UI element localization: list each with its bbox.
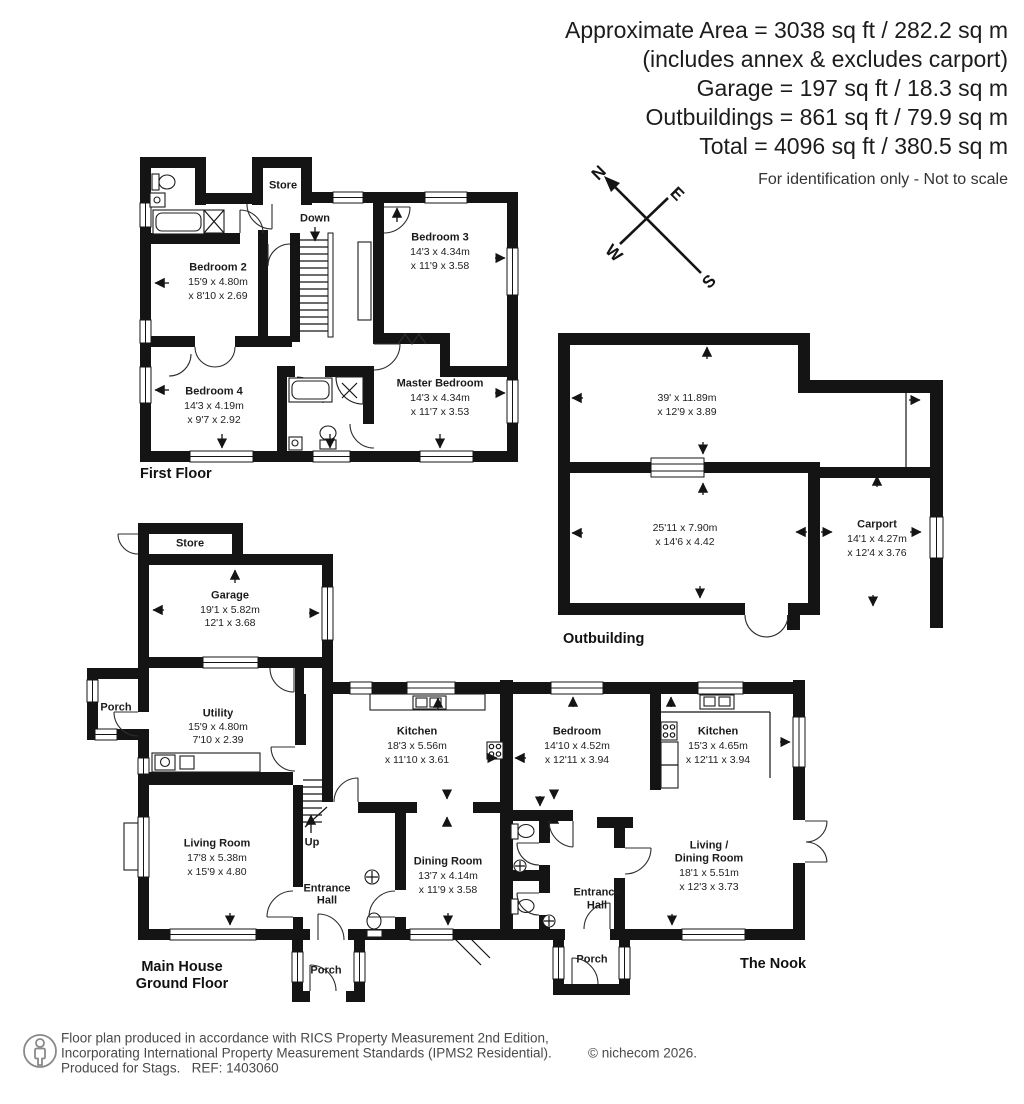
label-bedroom4: Bedroom 4 [185, 387, 242, 398]
title-first-floor: First Floor [140, 467, 212, 482]
dim-master-1: 14'3 x 4.34m [410, 393, 470, 404]
label-utility: Utility [203, 709, 234, 720]
label-porch-front: Porch [310, 966, 341, 977]
label-up: Up [305, 838, 320, 849]
ground-floor-plan [87, 523, 515, 1002]
garage-area: Garage = 197 sq ft / 18.3 sq m [565, 74, 1008, 103]
label-entrance-mh-2: Hall [317, 896, 337, 907]
dim-carport-1: 14'1 x 4.27m [847, 534, 907, 545]
label-living-room: Living Room [184, 839, 251, 850]
dim-carport-2: x 12'4 x 3.76 [847, 548, 906, 559]
label-down: Down [300, 214, 330, 225]
dim-living-2: x 15'9 x 4.80 [187, 867, 246, 878]
dim-garage-2: 12'1 x 3.68 [204, 618, 255, 629]
dim-dining-1: 13'7 x 4.14m [418, 871, 478, 882]
footer-line-3: Produced for Stags. REF: 1403060 [61, 1061, 279, 1076]
label-entrance-mh-1: Entrance [303, 884, 350, 895]
footer-line-1: Floor plan produced in accordance with R… [61, 1031, 549, 1046]
outbuildings-area: Outbuildings = 861 sq ft / 79.9 sq m [565, 103, 1008, 132]
toilet-icon [320, 440, 336, 449]
label-nook-bedroom: Bedroom [553, 727, 601, 738]
label-garage: Garage [211, 591, 249, 602]
dim-nook-kitchen-1: 15'3 x 4.65m [688, 741, 748, 752]
hob-icon [661, 722, 677, 740]
label-nook-living-2: Dining Room [675, 854, 743, 865]
approximate-area: Approximate Area = 3038 sq ft / 282.2 sq… [565, 16, 1008, 45]
dim-dining-2: x 11'9 x 3.58 [419, 885, 477, 896]
dim-utility-1: 15'9 x 4.80m [188, 722, 248, 733]
dim-kitchen-mh-2: x 11'10 x 3.61 [385, 755, 449, 766]
total-area: Total = 4096 sq ft / 380.5 sq m [565, 132, 1008, 161]
dim-outbuilding-room1-1: 39' x 11.89m [657, 393, 716, 404]
label-nook-porch: Porch [576, 955, 607, 966]
dim-living-1: 17'8 x 5.38m [187, 853, 247, 864]
label-bedroom3: Bedroom 3 [411, 233, 468, 244]
stairs-down [300, 227, 333, 337]
dim-outbuilding-room1-2: x 12'9 x 3.89 [657, 407, 716, 418]
dim-kitchen-mh-1: 18'3 x 5.56m [387, 741, 447, 752]
toilet-icon [511, 899, 518, 914]
toilet-icon [511, 824, 518, 839]
outbuilding-plan [558, 333, 943, 637]
utility-appliances [152, 753, 260, 772]
area-note-annex: (includes annex & excludes carport) [565, 45, 1008, 74]
dim-nook-bedroom-1: 14'10 x 4.52m [544, 741, 610, 752]
dim-outbuilding-room2-1: 25'11 x 7.90m [653, 523, 718, 534]
hall-fixtures [365, 870, 382, 937]
floorplan-page: N E W S [0, 0, 1024, 1104]
compass-s: S [698, 271, 719, 292]
dim-nook-bedroom-2: x 12'11 x 3.94 [545, 755, 609, 766]
label-store-gf: Store [176, 539, 204, 550]
compass-w: W [601, 241, 626, 266]
dim-outbuilding-room2-2: x 14'6 x 4.42 [655, 537, 714, 548]
dim-master-2: x 11'7 x 3.53 [411, 407, 469, 418]
title-main-house-2: Ground Floor [136, 977, 229, 992]
label-bedroom2: Bedroom 2 [189, 263, 246, 274]
dim-bedroom2-1: 15'9 x 4.80m [188, 277, 248, 288]
dim-bedroom4-1: 14'3 x 4.19m [184, 401, 244, 412]
label-master-bedroom: Master Bedroom [397, 379, 484, 390]
label-porch-left: Porch [100, 703, 131, 714]
hob-icon [487, 742, 503, 759]
dim-bedroom3-2: x 11'9 x 3.58 [411, 261, 469, 272]
label-kitchen-mh: Kitchen [397, 727, 437, 738]
dim-nook-living-2: x 12'3 x 3.73 [679, 882, 738, 893]
footer-line-2: Incorporating International Property Mea… [61, 1046, 552, 1061]
area-summary: Approximate Area = 3038 sq ft / 282.2 sq… [565, 16, 1008, 194]
person-scale-icon [24, 1035, 56, 1067]
chimney-breast [124, 823, 138, 870]
dim-nook-living-1: 18'1 x 5.51m [679, 868, 739, 879]
label-store-ff: Store [269, 181, 297, 192]
wardrobe [358, 242, 371, 320]
title-main-house-1: Main House [141, 960, 222, 975]
label-nook-living-1: Living / [690, 841, 729, 852]
dim-nook-kitchen-2: x 12'11 x 3.94 [686, 755, 750, 766]
outbuilding-double-doors [745, 615, 788, 637]
label-nook-entrance-1: Entrance [573, 888, 620, 899]
dim-bedroom4-2: x 9'7 x 2.92 [187, 415, 240, 426]
footer-copyright: © nichecom 2026. [588, 1046, 697, 1061]
label-dining-room: Dining Room [414, 857, 482, 868]
identification-note: For identification only - Not to scale [565, 165, 1008, 194]
dim-bedroom3-1: 14'3 x 4.34m [410, 247, 470, 258]
label-nook-kitchen: Kitchen [698, 727, 738, 738]
toilet-icon [152, 174, 159, 190]
title-outbuilding: Outbuilding [563, 632, 644, 647]
label-carport: Carport [857, 520, 897, 531]
dim-bedroom2-2: x 8'10 x 2.69 [188, 291, 247, 302]
dim-utility-2: 7'10 x 2.39 [192, 735, 243, 746]
title-the-nook: The Nook [740, 957, 806, 972]
dim-garage-1: 19'1 x 5.82m [200, 605, 260, 616]
label-nook-entrance-2: Hall [587, 901, 607, 912]
